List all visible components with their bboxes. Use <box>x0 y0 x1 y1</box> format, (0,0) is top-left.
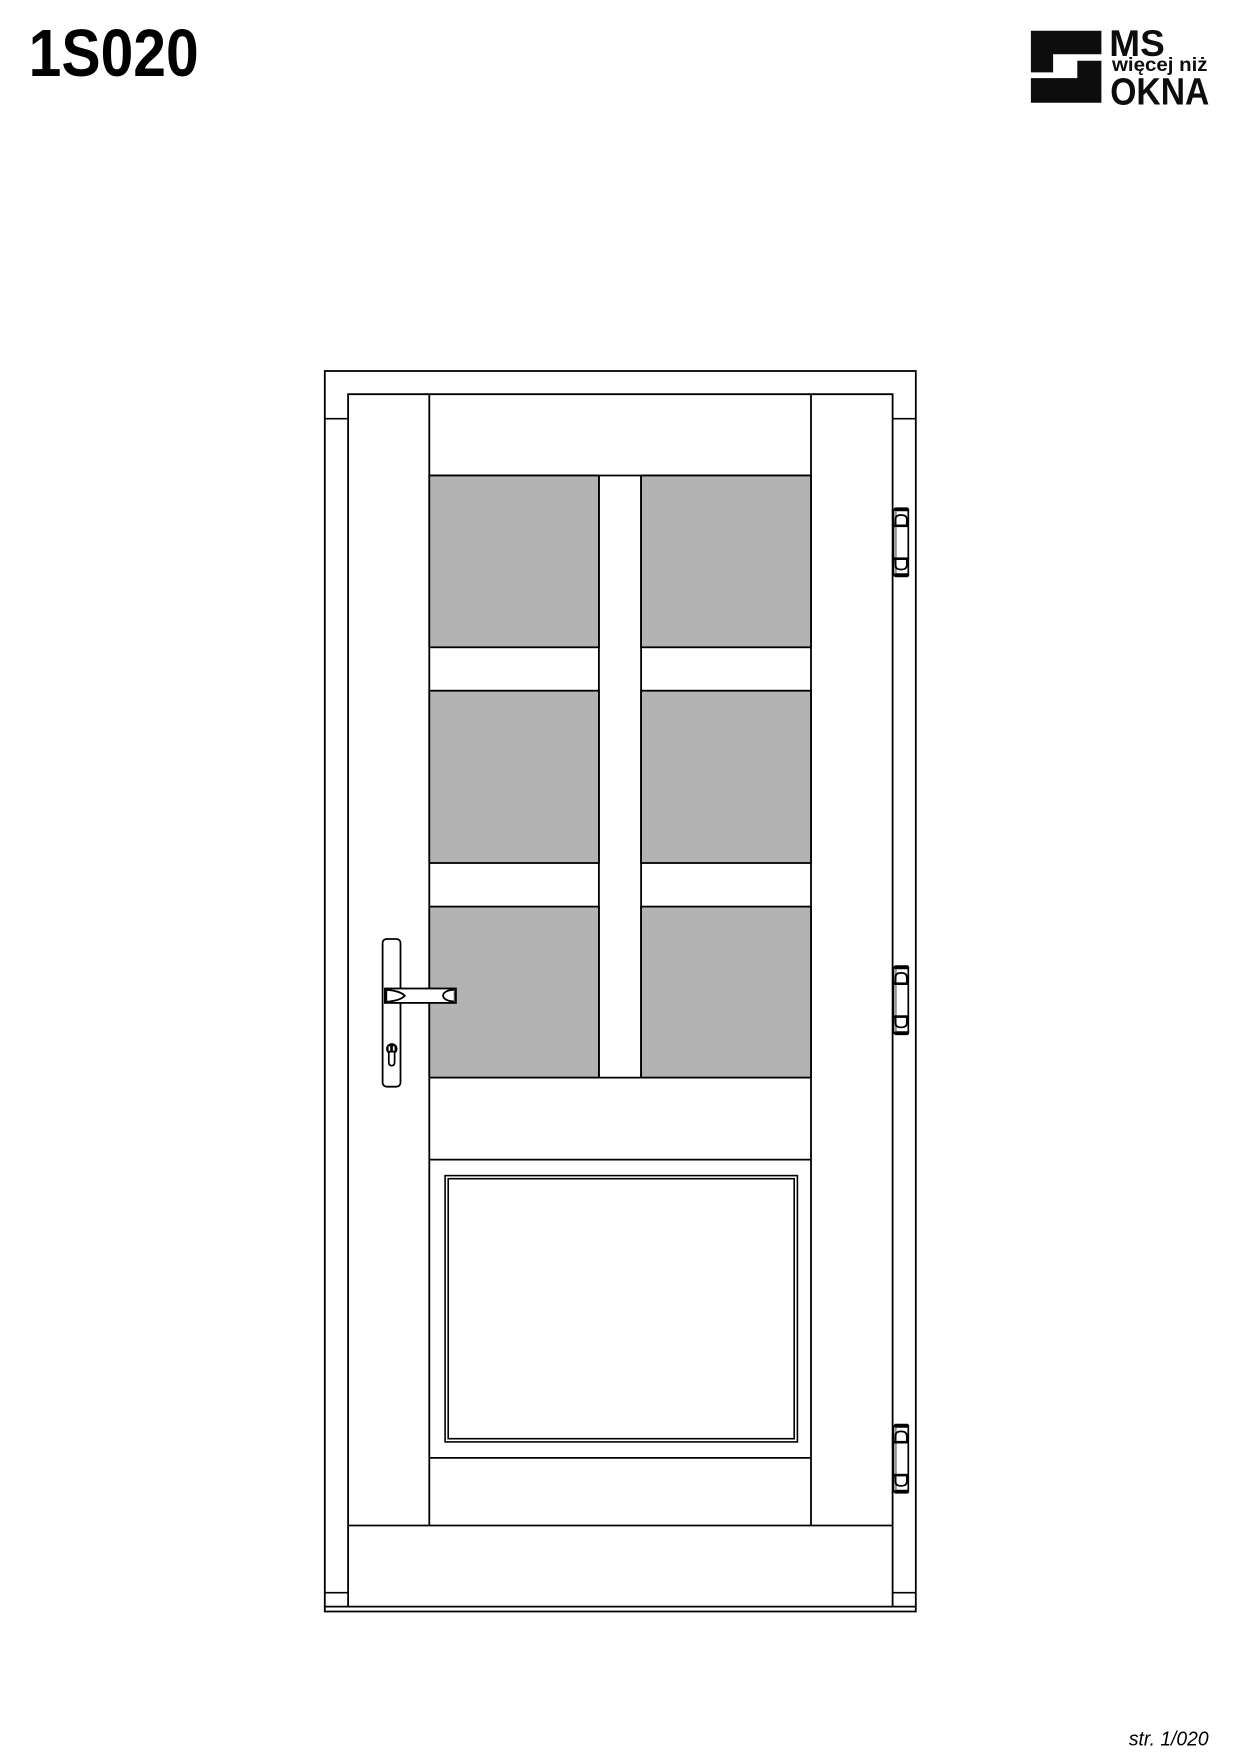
svg-text:OKNA: OKNA <box>1110 69 1209 112</box>
svg-text:1S020: 1S020 <box>29 17 199 91</box>
svg-text:str. 1/020: str. 1/020 <box>1129 1729 1209 1751</box>
